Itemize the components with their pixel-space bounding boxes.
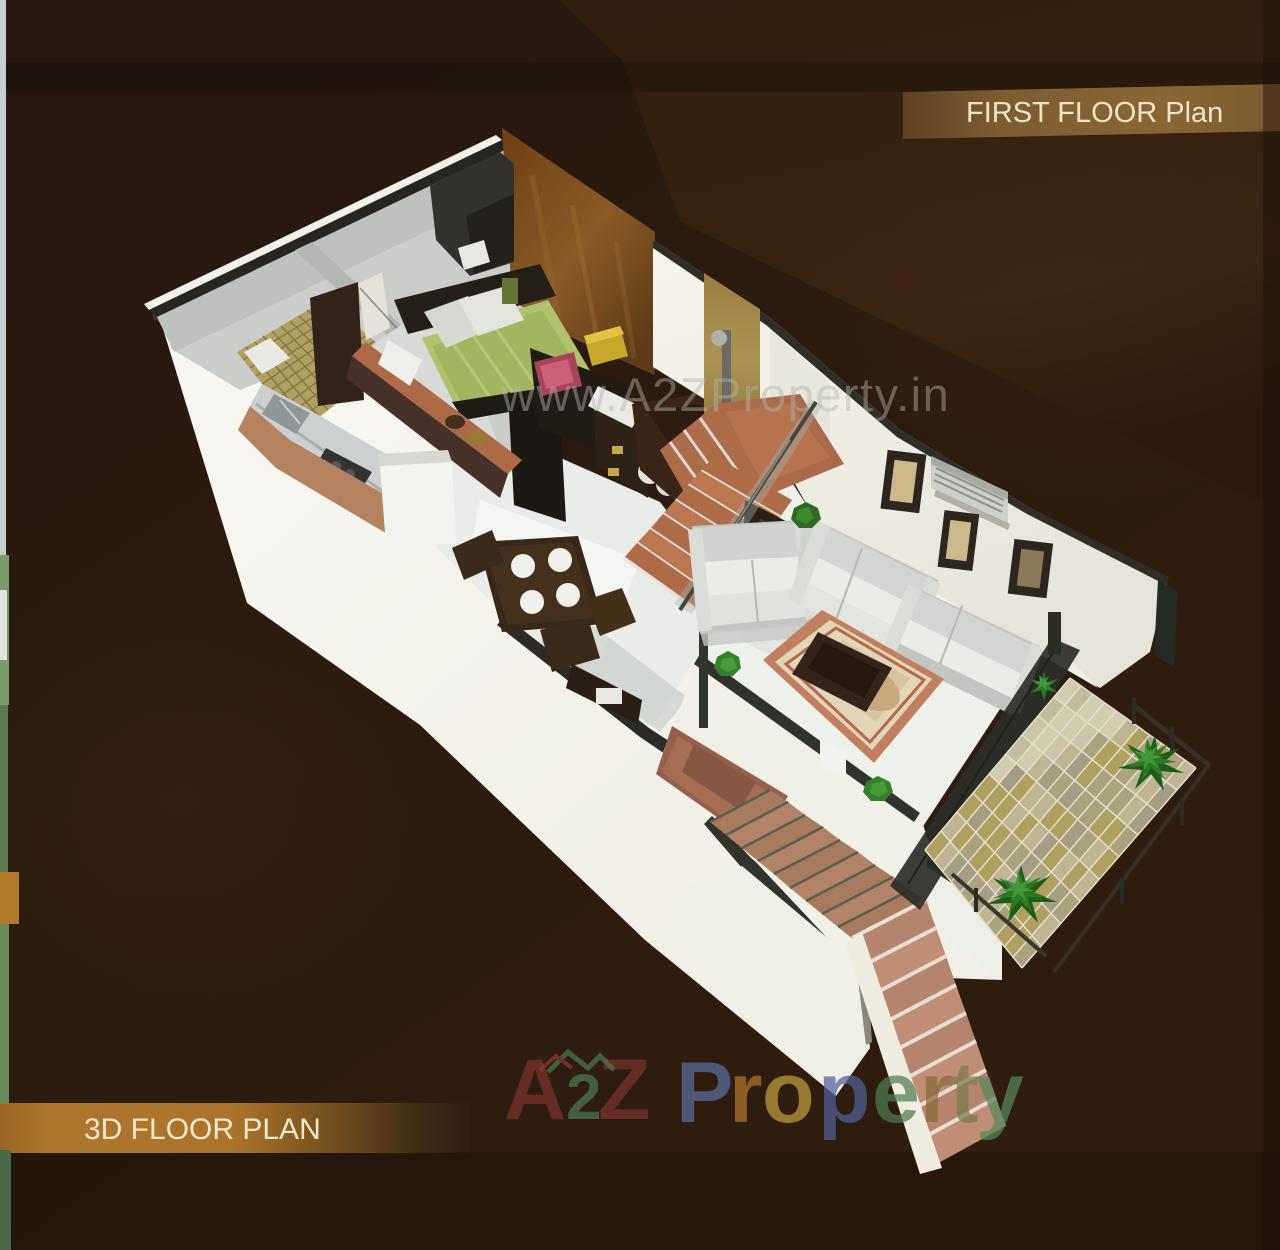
svg-text:www.A2ZProperty.in: www.A2ZProperty.in <box>500 368 950 421</box>
svg-text:t: t <box>950 1045 979 1141</box>
svg-text:e: e <box>872 1045 920 1141</box>
svg-text:FIRST FLOOR Plan: FIRST FLOOR Plan <box>966 97 1223 129</box>
svg-text:o: o <box>762 1045 815 1141</box>
svg-text:p: p <box>818 1045 871 1141</box>
svg-text:P: P <box>676 1045 733 1141</box>
svg-text:3D FLOOR PLAN: 3D FLOOR PLAN <box>84 1113 321 1146</box>
svg-text:r: r <box>920 1045 953 1141</box>
svg-text:2: 2 <box>566 1061 602 1133</box>
svg-text:y: y <box>976 1045 1024 1141</box>
svg-text:r: r <box>729 1045 762 1141</box>
svg-text:Z: Z <box>598 1042 651 1138</box>
